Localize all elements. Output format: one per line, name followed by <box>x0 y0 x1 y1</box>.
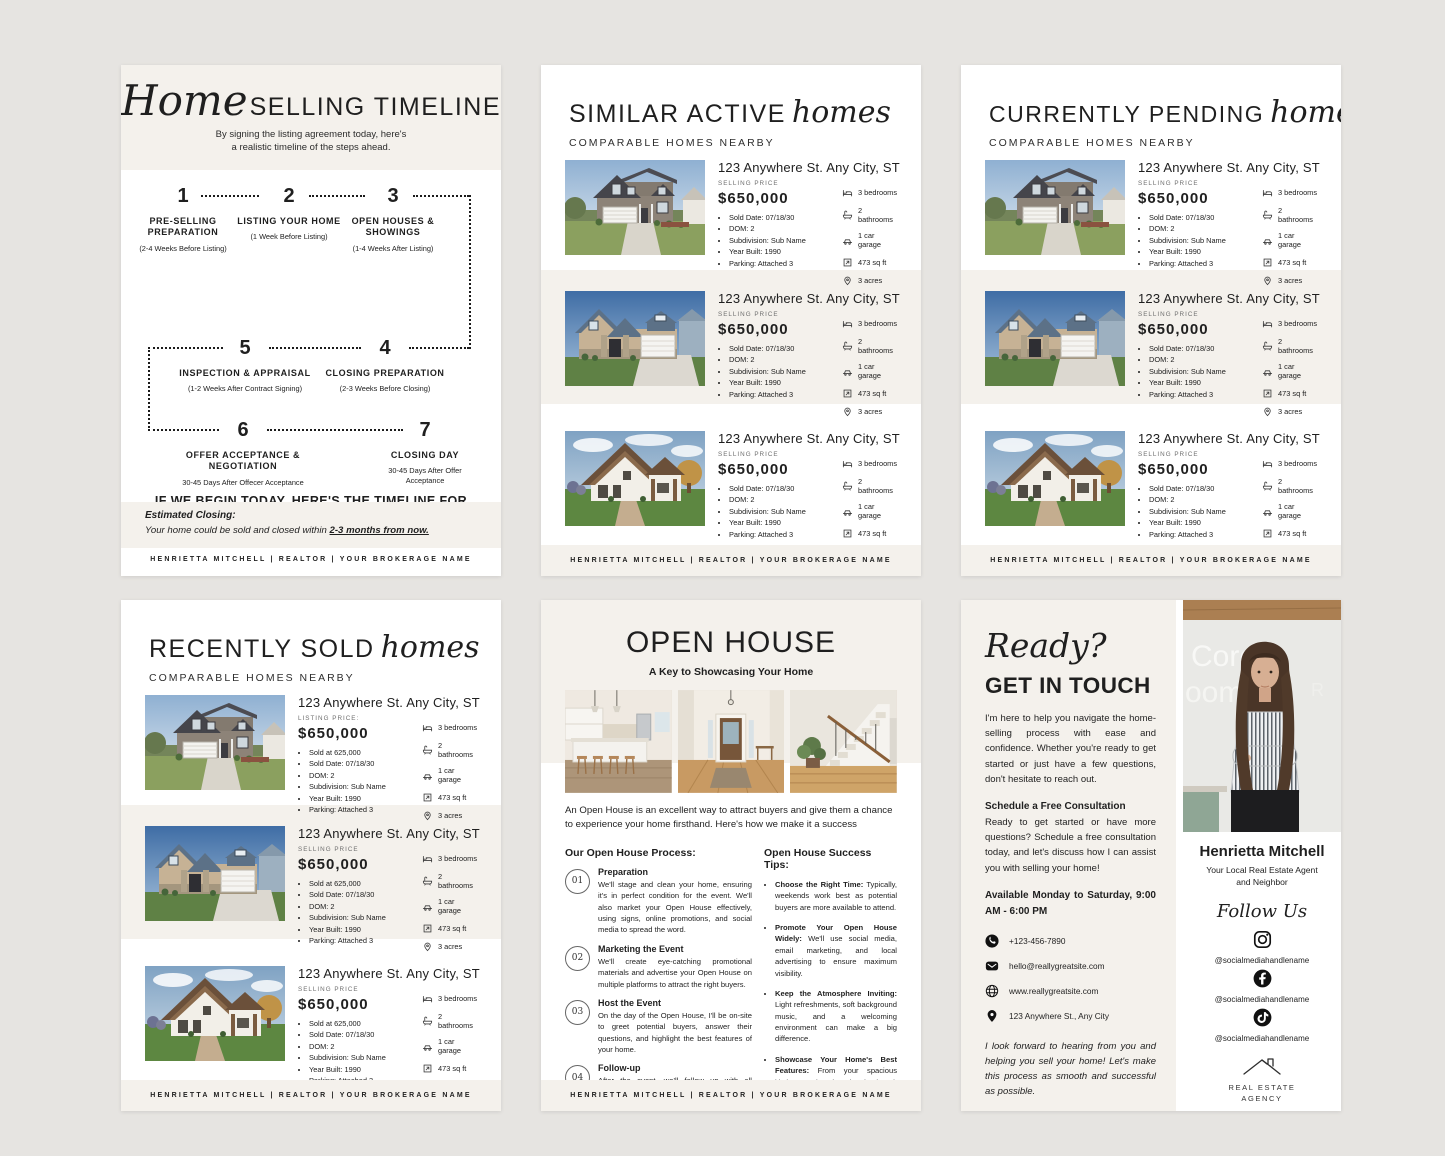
consultation-heading: Schedule a Free Consultation <box>985 801 1156 812</box>
agency-logo: REAL ESTATE AGENCY <box>1183 1055 1341 1105</box>
location-icon <box>985 1009 999 1023</box>
car-icon: 1 car garage <box>842 502 899 520</box>
detail-bullet: Subdivision: Sub Name <box>729 366 834 377</box>
bath-icon: 2 bathrooms <box>1262 477 1319 495</box>
detail-bullet: Year Built: 1990 <box>1149 517 1254 528</box>
page-footer: HENRIETTA MITCHELL | REALTOR | YOUR BROK… <box>121 548 501 576</box>
timeline-step-7: 7 CLOSING DAY 30-45 Days After Offer Acc… <box>371 419 479 486</box>
car-icon: 1 car garage <box>1262 362 1319 380</box>
detail-bullet: Sold at 625,000 <box>309 747 414 758</box>
timeline-step-5: 5 INSPECTION & APPRAISAL (1-2 Weeks Afte… <box>175 337 315 394</box>
listing-attributes: 3 bedrooms2 bathrooms1 car garage473 sq … <box>1262 318 1319 425</box>
detail-bullet: Parking: Attached 3 <box>1149 529 1254 540</box>
bath-icon: 2 bathrooms <box>1262 337 1319 355</box>
detail-bullet: Sold Date: 07/18/30 <box>309 1029 414 1040</box>
page-footer: HENRIETTA MITCHELL | REALTOR | YOUR BROK… <box>541 545 921 576</box>
bed-icon: 3 bedrooms <box>1262 318 1319 329</box>
car-icon: 1 car garage <box>422 897 479 915</box>
detail-bullet: Sold Date: 07/18/30 <box>729 343 834 354</box>
price-label: SELLING PRICE <box>1138 311 1254 318</box>
page-similar-active-homes: SIMILAR ACTIVEhomes COMPARABLE HOMES NEA… <box>541 65 921 576</box>
listing-row: 123 Anywhere St. Any City, ST SELLING PR… <box>541 404 921 545</box>
estimated-closing-band: Estimated Closing: Your home could be so… <box>121 502 501 548</box>
staircase-photo <box>790 690 897 793</box>
area-icon: 473 sq ft <box>422 1063 479 1074</box>
listing-row: 123 Anywhere St. Any City, ST SELLING PR… <box>541 155 921 270</box>
tip-item: Promote Your Open House Widely: We'll us… <box>775 922 897 979</box>
detail-bullet: DOM: 2 <box>729 354 834 365</box>
tips-heading: Open House Success Tips: <box>764 847 897 871</box>
bath-icon: 2 bathrooms <box>842 206 899 224</box>
timeline-step-3: 3 OPEN HOUSES & SHOWINGS (1-4 Weeks Afte… <box>341 185 445 253</box>
listing-page-header: CURRENTLY PENDINGhomes COMPARABLE HOMES … <box>961 65 1341 155</box>
follow-us-script: Follow Us <box>1183 901 1341 922</box>
listing-address: 123 Anywhere St. Any City, ST <box>718 431 899 446</box>
listing-row: 123 Anywhere St. Any City, ST SELLING PR… <box>121 939 501 1080</box>
house-photo <box>565 160 705 255</box>
detail-bullet: Subdivision: Sub Name <box>1149 235 1254 246</box>
agent-name: Henrietta Mitchell <box>1183 843 1341 860</box>
page-title: CURRENTLY PENDINGhomes <box>989 95 1313 130</box>
detail-bullet: Sold Date: 07/18/30 <box>1149 212 1254 223</box>
car-icon: 1 car garage <box>1262 231 1319 249</box>
detail-bullet: DOM: 2 <box>1149 354 1254 365</box>
process-column: Our Open House Process: 01 Preparation W… <box>565 843 752 1111</box>
price-label: SELLING PRICE <box>718 451 834 458</box>
price-value: $650,000 <box>298 856 414 873</box>
timeline-step-1: 1 PRE-SELLING PREPARATION (2-4 Weeks Bef… <box>131 185 235 253</box>
detail-bullet: Sold Date: 07/18/30 <box>1149 483 1254 494</box>
acres-icon: 3 acres <box>422 810 479 821</box>
timeline-step-2: 2 LISTING YOUR HOME (1 Week Before Listi… <box>237 185 341 242</box>
entryway-photo <box>678 690 785 793</box>
tip-item: Choose the Right Time: Typically, weeken… <box>775 879 897 913</box>
bath-icon: 2 bathrooms <box>422 872 479 890</box>
timeline-header: Home SELLING TIMELINE By signing the lis… <box>121 65 501 170</box>
availability-text: Available Monday to Saturday, 9:00 AM - … <box>985 888 1156 920</box>
detail-bullet: DOM: 2 <box>729 494 834 505</box>
title-script-word: Home <box>121 91 248 111</box>
contact-text-column: Ready? GET IN TOUCH I'm here to help you… <box>961 600 1176 1111</box>
title-main: SELLING TIMELINE <box>250 93 501 122</box>
area-icon: 473 sq ft <box>422 792 479 803</box>
detail-bullet: Subdivision: Sub Name <box>729 235 834 246</box>
detail-bullet: Parking: Attached 3 <box>729 529 834 540</box>
page-title: OPEN HOUSE <box>541 600 921 660</box>
contact-intro: I'm here to help you navigate the home-s… <box>985 711 1156 787</box>
open-house-photos <box>541 690 921 793</box>
listing-attributes: 3 bedrooms2 bathrooms1 car garage473 sq … <box>842 318 899 425</box>
price-label: SELLING PRICE <box>1138 180 1254 187</box>
bath-icon: 2 bathrooms <box>842 477 899 495</box>
detail-bullet: Parking: Attached 3 <box>1149 258 1254 269</box>
listing-details: Sold Date: 07/18/30DOM: 2Subdivision: Su… <box>1138 343 1254 400</box>
detail-bullet: Parking: Attached 3 <box>309 804 414 815</box>
listing-address: 123 Anywhere St. Any City, ST <box>298 826 479 841</box>
tiktok-icon <box>1253 1008 1272 1027</box>
area-icon: 473 sq ft <box>422 923 479 934</box>
process-step: 02 Marketing the Event We'll create eye-… <box>565 944 752 990</box>
car-icon: 1 car garage <box>422 1037 479 1055</box>
house-photo <box>985 291 1125 386</box>
page-title: SIMILAR ACTIVEhomes <box>569 95 893 130</box>
page-subtitle: COMPARABLE HOMES NEARBY <box>989 137 1313 149</box>
social-handle: @socialmediahandlename <box>1183 1034 1341 1043</box>
listing-row: 123 Anywhere St. Any City, ST SELLING PR… <box>121 805 501 939</box>
tip-item: Keep the Atmosphere Inviting: Light refr… <box>775 988 897 1045</box>
house-photo <box>145 966 285 1061</box>
acres-icon: 3 acres <box>842 406 899 417</box>
phone-row[interactable]: +123-456-7890 <box>985 934 1156 948</box>
closing-note: I look forward to hearing from you and h… <box>985 1039 1156 1100</box>
timeline-step-4: 4 CLOSING PREPARATION (2-3 Weeks Before … <box>315 337 455 394</box>
social-handle: @socialmediahandlename <box>1183 956 1341 965</box>
house-photo <box>985 160 1125 255</box>
page-subtitle: By signing the listing agreement today, … <box>121 128 501 155</box>
listing-address: 123 Anywhere St. Any City, ST <box>718 160 899 175</box>
bed-icon: 3 bedrooms <box>422 993 479 1004</box>
page-subtitle: COMPARABLE HOMES NEARBY <box>569 137 893 149</box>
listing-details: Sold at 625,000Sold Date: 07/18/30DOM: 2… <box>298 747 414 816</box>
price-label: SELLING PRICE <box>718 180 834 187</box>
globe-icon <box>985 984 999 998</box>
listing-details: Sold at 625,000Sold Date: 07/18/30DOM: 2… <box>298 1018 414 1087</box>
detail-bullet: Year Built: 1990 <box>309 793 414 804</box>
detail-bullet: Year Built: 1990 <box>729 377 834 388</box>
kitchen-photo <box>565 690 672 793</box>
detail-bullet: Year Built: 1990 <box>309 1064 414 1075</box>
page-footer: HENRIETTA MITCHELL | REALTOR | YOUR BROK… <box>961 545 1341 576</box>
phone-icon <box>985 934 999 948</box>
bath-icon: 2 bathrooms <box>1262 206 1319 224</box>
detail-bullet: Sold Date: 07/18/30 <box>309 758 414 769</box>
detail-bullet: Parking: Attached 3 <box>729 258 834 269</box>
consultation-text: Ready to get started or have more questi… <box>985 815 1156 876</box>
listing-details: Sold Date: 07/18/30DOM: 2Subdivision: Su… <box>1138 212 1254 269</box>
listing-page-header: SIMILAR ACTIVEhomes COMPARABLE HOMES NEA… <box>541 65 921 155</box>
listing-details: Sold Date: 07/18/30DOM: 2Subdivision: Su… <box>718 483 834 540</box>
listing-row: 123 Anywhere St. Any City, ST SELLING PR… <box>961 404 1341 545</box>
house-photo <box>565 431 705 526</box>
page-open-house: OPEN HOUSE A Key to Showcasing Your Home… <box>541 600 921 1111</box>
page-title: Home SELLING TIMELINE <box>121 91 501 122</box>
listing-attributes: 3 bedrooms2 bathrooms1 car garage473 sq … <box>1262 187 1319 294</box>
detail-bullet: Sold Date: 07/18/30 <box>729 212 834 223</box>
house-photo <box>145 826 285 921</box>
price-label: SELLING PRICE <box>298 846 414 853</box>
price-value: $650,000 <box>718 321 834 338</box>
detail-bullet: DOM: 2 <box>309 901 414 912</box>
detail-bullet: Subdivision: Sub Name <box>729 506 834 517</box>
acres-icon: 3 acres <box>1262 406 1319 417</box>
acres-icon: 3 acres <box>1262 275 1319 286</box>
listing-attributes: 3 bedrooms2 bathrooms1 car garage473 sq … <box>842 187 899 294</box>
price-label: SELLING PRICE <box>298 986 414 993</box>
price-value: $650,000 <box>298 725 414 742</box>
listing-row: 123 Anywhere St. Any City, ST SELLING PR… <box>961 270 1341 404</box>
detail-bullet: DOM: 2 <box>309 770 414 781</box>
listing-attributes: 3 bedrooms2 bathrooms1 car garage473 sq … <box>422 853 479 960</box>
page-footer: HENRIETTA MITCHELL | REALTOR | YOUR BROK… <box>121 1080 501 1111</box>
listing-row: 123 Anywhere St. Any City, ST LISTING PR… <box>121 690 501 805</box>
bed-icon: 3 bedrooms <box>422 853 479 864</box>
price-label: SELLING PRICE <box>1138 451 1254 458</box>
car-icon: 1 car garage <box>842 231 899 249</box>
listing-details: Sold at 625,000Sold Date: 07/18/30DOM: 2… <box>298 878 414 947</box>
listing-address: 123 Anywhere St. Any City, ST <box>1138 431 1319 446</box>
page-recently-sold-homes: RECENTLY SOLDhomes COMPARABLE HOMES NEAR… <box>121 600 501 1111</box>
house-photo <box>985 431 1125 526</box>
listing-address: 123 Anywhere St. Any City, ST <box>718 291 899 306</box>
email-row[interactable]: hello@reallygreatsite.com <box>985 959 1156 973</box>
bed-icon: 3 bedrooms <box>422 722 479 733</box>
listing-address: 123 Anywhere St. Any City, ST <box>1138 291 1319 306</box>
detail-bullet: DOM: 2 <box>309 1041 414 1052</box>
car-icon: 1 car garage <box>842 362 899 380</box>
area-icon: 473 sq ft <box>842 388 899 399</box>
page-footer: HENRIETTA MITCHELL | REALTOR | YOUR BROK… <box>541 1080 921 1111</box>
open-house-intro: An Open House is an excellent way to att… <box>541 804 921 833</box>
process-heading: Our Open House Process: <box>565 847 752 859</box>
detail-bullet: Subdivision: Sub Name <box>1149 506 1254 517</box>
detail-bullet: Subdivision: Sub Name <box>309 912 414 923</box>
contact-list: +123-456-7890 hello@reallygreatsite.com … <box>985 934 1156 1023</box>
price-label: LISTING PRICE: <box>298 715 414 722</box>
detail-bullet: Parking: Attached 3 <box>309 935 414 946</box>
instagram-icon <box>1253 930 1272 949</box>
price-value: $650,000 <box>298 996 414 1013</box>
detail-bullet: Sold Date: 07/18/30 <box>729 483 834 494</box>
listing-address: 123 Anywhere St. Any City, ST <box>1138 160 1319 175</box>
dotted-connector <box>148 347 150 431</box>
email-icon <box>985 959 999 973</box>
listing-details: Sold Date: 07/18/30DOM: 2Subdivision: Su… <box>718 343 834 400</box>
page-currently-pending-homes: CURRENTLY PENDINGhomes COMPARABLE HOMES … <box>961 65 1341 576</box>
acres-icon: 3 acres <box>842 275 899 286</box>
detail-bullet: Sold Date: 07/18/30 <box>309 889 414 900</box>
listing-address: 123 Anywhere St. Any City, ST <box>298 695 479 710</box>
bed-icon: 3 bedrooms <box>842 318 899 329</box>
bath-icon: 2 bathrooms <box>422 741 479 759</box>
detail-bullet: Sold at 625,000 <box>309 1018 414 1029</box>
detail-bullet: Year Built: 1990 <box>1149 377 1254 388</box>
area-icon: 473 sq ft <box>842 257 899 268</box>
price-label: SELLING PRICE <box>718 311 834 318</box>
tiktok-link[interactable]: @socialmediahandlename <box>1183 1008 1341 1043</box>
listing-details: Sold Date: 07/18/30DOM: 2Subdivision: Su… <box>718 212 834 269</box>
price-value: $650,000 <box>1138 321 1254 338</box>
detail-bullet: Sold Date: 07/18/30 <box>1149 343 1254 354</box>
detail-bullet: Year Built: 1990 <box>309 924 414 935</box>
detail-bullet: Year Built: 1990 <box>729 517 834 528</box>
page-home-selling-timeline: Home SELLING TIMELINE By signing the lis… <box>121 65 501 576</box>
listing-page-header: RECENTLY SOLDhomes COMPARABLE HOMES NEAR… <box>121 600 501 690</box>
house-photo <box>565 291 705 386</box>
agent-column: Henrietta Mitchell Your Local Real Estat… <box>1183 600 1341 1111</box>
price-value: $650,000 <box>718 461 834 478</box>
detail-bullet: DOM: 2 <box>1149 494 1254 505</box>
ready-script: Ready? <box>985 626 1156 665</box>
area-icon: 473 sq ft <box>842 528 899 539</box>
bed-icon: 3 bedrooms <box>842 187 899 198</box>
facebook-icon <box>1253 969 1272 988</box>
detail-bullet: Parking: Attached 3 <box>1149 389 1254 400</box>
social-handle: @socialmediahandlename <box>1183 995 1341 1004</box>
dotted-connector <box>469 195 471 349</box>
bed-icon: 3 bedrooms <box>1262 187 1319 198</box>
page-subtitle: COMPARABLE HOMES NEARBY <box>149 672 473 684</box>
detail-bullet: Sold at 625,000 <box>309 878 414 889</box>
house-photo <box>145 695 285 790</box>
flyer-grid-canvas: Core oom R <box>0 0 1445 1156</box>
area-icon: 473 sq ft <box>1262 257 1319 268</box>
listing-row: 123 Anywhere St. Any City, ST SELLING PR… <box>961 155 1341 270</box>
page-subtitle: A Key to Showcasing Your Home <box>541 666 921 678</box>
step-number-badge: 01 <box>565 869 590 894</box>
acres-icon: 3 acres <box>422 941 479 952</box>
area-icon: 473 sq ft <box>1262 388 1319 399</box>
bath-icon: 2 bathrooms <box>842 337 899 355</box>
detail-bullet: DOM: 2 <box>729 223 834 234</box>
listing-details: Sold Date: 07/18/30DOM: 2Subdivision: Su… <box>1138 483 1254 540</box>
detail-bullet: Parking: Attached 3 <box>729 389 834 400</box>
detail-bullet: DOM: 2 <box>1149 223 1254 234</box>
price-value: $650,000 <box>1138 461 1254 478</box>
facebook-link[interactable]: @socialmediahandlename <box>1183 969 1341 1004</box>
tips-list: Choose the Right Time: Typically, weeken… <box>764 879 897 1111</box>
listing-attributes: 3 bedrooms2 bathrooms1 car garage473 sq … <box>422 722 479 829</box>
listing-address: 123 Anywhere St. Any City, ST <box>298 966 479 981</box>
price-value: $650,000 <box>718 190 834 207</box>
agent-role: Your Local Real Estate Agent and Neighbo… <box>1183 864 1341 889</box>
agency-house-icon <box>1240 1055 1284 1077</box>
step-number-badge: 02 <box>565 946 590 971</box>
timeline-step-6: 6 OFFER ACCEPTANCE & NEGOTIATION 30-45 D… <box>163 419 323 487</box>
car-icon: 1 car garage <box>422 766 479 784</box>
page-title: GET IN TOUCH <box>985 673 1156 699</box>
bed-icon: 3 bedrooms <box>842 458 899 469</box>
detail-bullet: Year Built: 1990 <box>1149 246 1254 257</box>
detail-bullet: Subdivision: Sub Name <box>1149 366 1254 377</box>
page-get-in-touch: Ready? GET IN TOUCH I'm here to help you… <box>961 600 1341 1111</box>
price-value: $650,000 <box>1138 190 1254 207</box>
listing-row: 123 Anywhere St. Any City, ST SELLING PR… <box>541 270 921 404</box>
area-icon: 473 sq ft <box>1262 528 1319 539</box>
process-step: 01 Preparation We'll stage and clean you… <box>565 867 752 936</box>
instagram-link[interactable]: @socialmediahandlename <box>1183 930 1341 965</box>
detail-bullet: Year Built: 1990 <box>729 246 834 257</box>
social-links: @socialmediahandlename @socialmediahandl… <box>1183 930 1341 1043</box>
website-row[interactable]: www.reallygreatsite.com <box>985 984 1156 998</box>
process-step: 03 Host the Event On the day of the Open… <box>565 998 752 1056</box>
detail-bullet: Subdivision: Sub Name <box>309 1052 414 1063</box>
detail-bullet: Subdivision: Sub Name <box>309 781 414 792</box>
address-row: 123 Anywhere St., Any City <box>985 1009 1156 1023</box>
bath-icon: 2 bathrooms <box>422 1012 479 1030</box>
agent-photo <box>1183 600 1341 832</box>
tips-column: Open House Success Tips: Choose the Righ… <box>764 843 897 1111</box>
step-number-badge: 03 <box>565 1000 590 1025</box>
page-title: RECENTLY SOLDhomes <box>149 630 473 665</box>
car-icon: 1 car garage <box>1262 502 1319 520</box>
bed-icon: 3 bedrooms <box>1262 458 1319 469</box>
